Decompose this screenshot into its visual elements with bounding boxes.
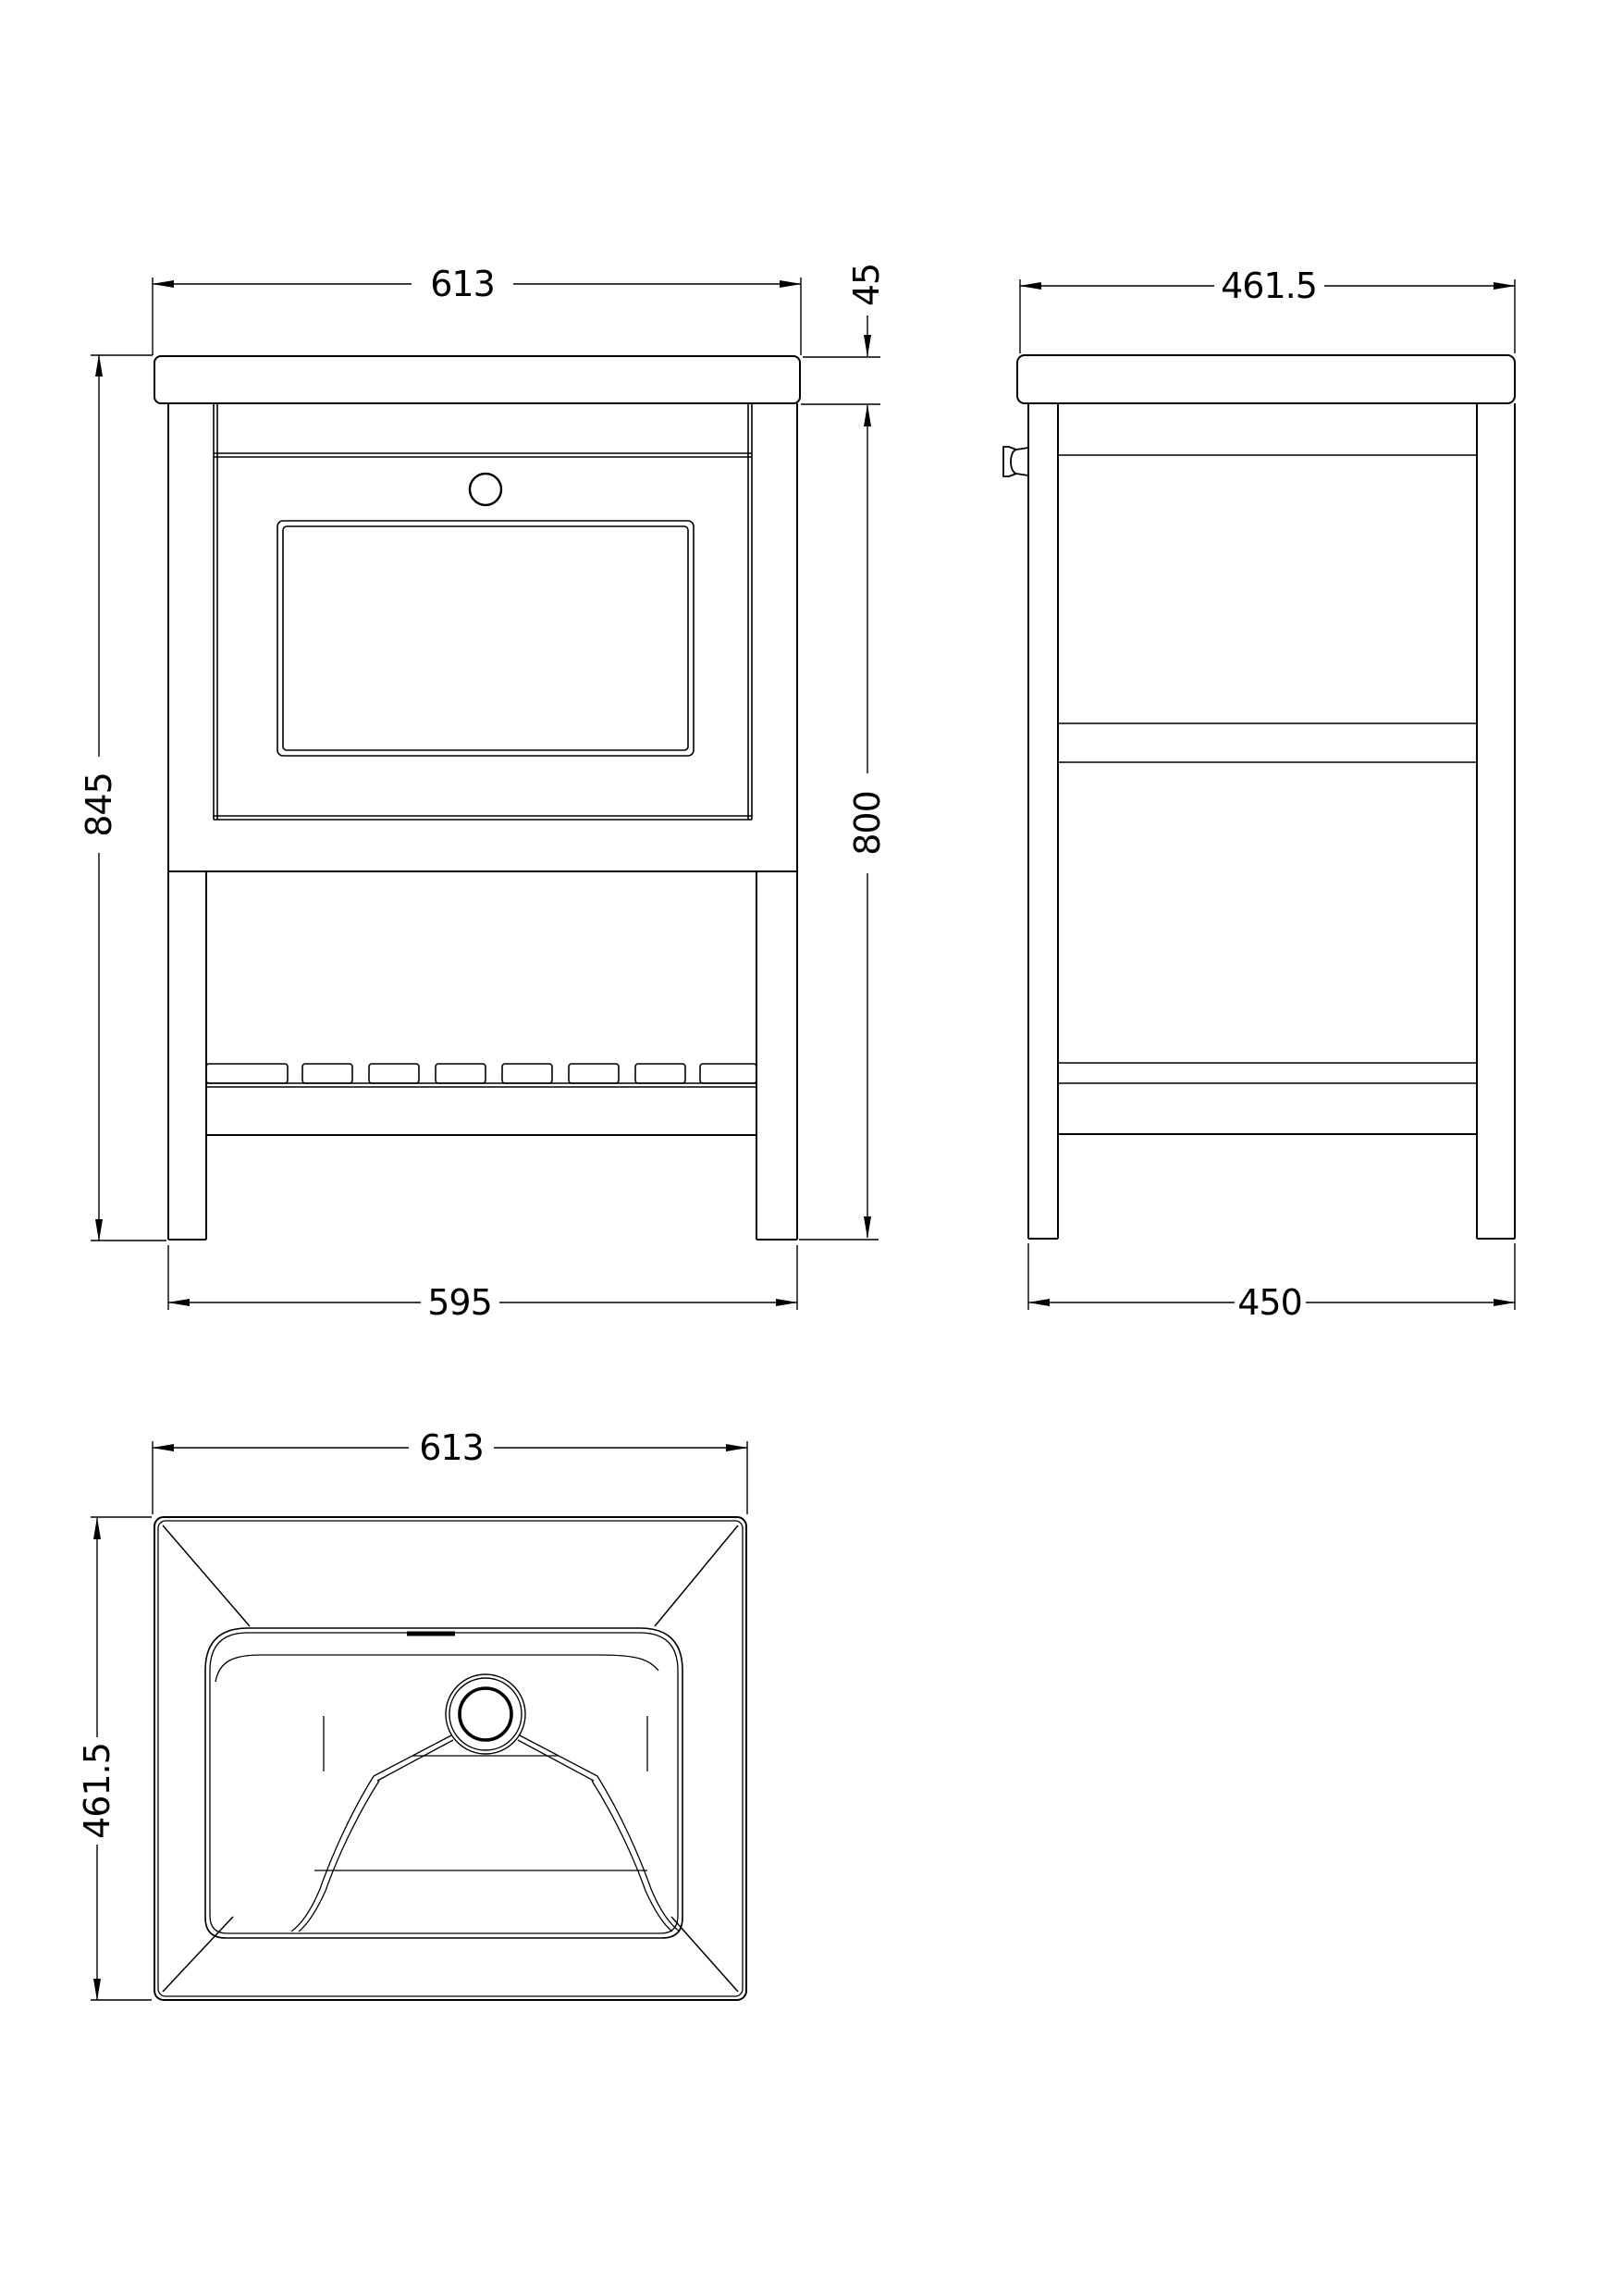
plan-depth-label: 461.5	[77, 1743, 117, 1839]
front-countertop	[154, 356, 800, 403]
technical-drawing-sheet: 613 845 45 800 595	[0, 0, 1623, 2296]
plan-dimensions	[91, 1441, 747, 2000]
plan-basin-outline	[154, 1517, 746, 2000]
side-countertop	[1017, 355, 1515, 403]
front-view	[154, 356, 800, 1240]
side-base-depth-label: 450	[1237, 1282, 1302, 1323]
front-base-width-label: 595	[427, 1282, 492, 1323]
side-knob	[1003, 447, 1028, 476]
plan-width-label: 613	[419, 1427, 484, 1468]
front-cabinet-height-label: 800	[847, 791, 888, 856]
plan-tap-hole	[446, 1674, 525, 1754]
front-top-width-label: 613	[430, 264, 495, 304]
plan-basin-rim	[205, 1628, 682, 1938]
front-shelf-rail	[206, 1083, 756, 1135]
side-cabinet-frame	[1028, 403, 1515, 1239]
plan-view	[154, 1517, 746, 2000]
front-drawer	[214, 404, 752, 820]
vanity-unit-drawing: 613 845 45 800 595	[0, 0, 1623, 2296]
front-shelf-slats	[206, 1064, 756, 1083]
front-drawer-panel	[277, 521, 694, 756]
side-top-depth-label: 461.5	[1221, 265, 1317, 306]
front-cabinet-frame	[168, 403, 797, 1240]
plan-bowl-slopes	[291, 1716, 680, 1932]
front-overall-height-label: 845	[79, 772, 119, 837]
plan-corner-diagonals	[163, 1525, 738, 1992]
front-counter-thickness-label: 45	[846, 264, 887, 306]
front-knob-hole	[470, 474, 501, 505]
side-view	[1003, 355, 1515, 1239]
side-dimensions	[1020, 279, 1515, 1310]
front-dimensions	[91, 278, 880, 1310]
